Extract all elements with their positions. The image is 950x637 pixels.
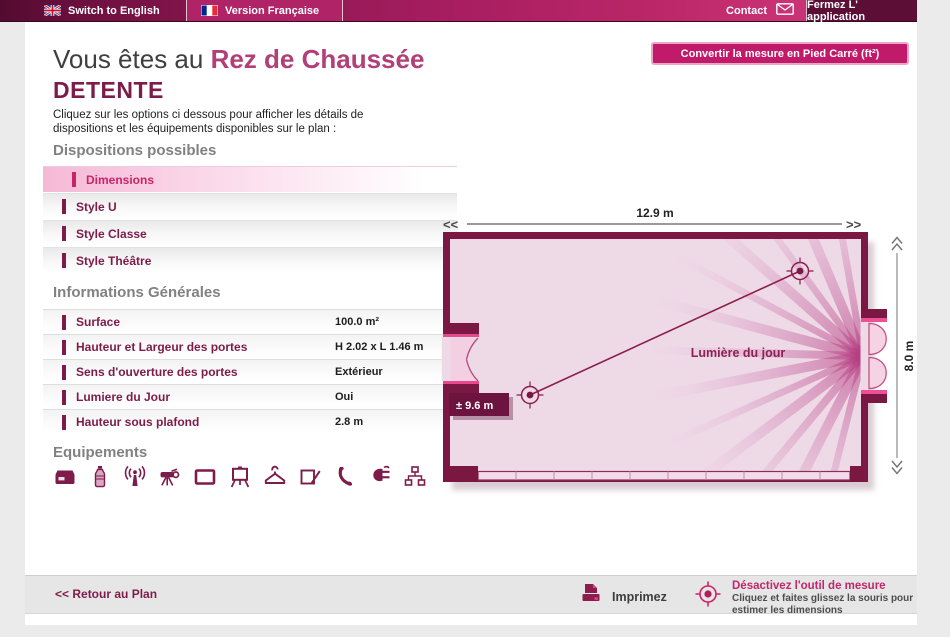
info-row-hauteur-plafond: Hauteur sous plafond 2.8 m (43, 409, 457, 434)
info-value: 100.0 m² (335, 316, 379, 328)
wireless-signal-icon[interactable] (123, 464, 147, 490)
info-row-lumiere: Lumiere du Jour Oui (43, 384, 457, 409)
row-accent-bar (62, 226, 66, 241)
measure-tool-title[interactable]: Désactivez l'outil de mesure (732, 580, 913, 592)
info-value: Oui (335, 391, 353, 403)
info-label: Hauteur sous plafond (76, 415, 199, 429)
switch-to-english-tab[interactable]: Switch to English (30, 0, 186, 21)
back-to-plan-link[interactable]: << Retour au Plan (55, 587, 157, 601)
disposition-label: Style Classe (76, 227, 147, 241)
measure-tool-hint: Cliquez et faites glissez la souris pour… (732, 593, 913, 616)
scroll-down-arrow[interactable] (892, 461, 902, 474)
right-door-leaf-top (869, 324, 886, 355)
intro-text: Cliquez sur les options ci dessous pour … (53, 108, 363, 136)
application-window: Switch to English Version Française Cont… (0, 0, 950, 637)
informations-section-title: Informations Générales (53, 284, 221, 301)
info-label: Hauteur et Largeur des portes (76, 340, 247, 354)
plan-height-dimension: 8.0 m (892, 238, 916, 474)
page-title-prefix: Vous êtes au (53, 44, 211, 74)
disposition-item-style-theatre[interactable]: Style Théâtre (43, 247, 457, 273)
scroll-left-arrow[interactable]: << (443, 217, 459, 232)
screen-icon[interactable] (193, 464, 217, 490)
intro-line-1: Cliquez sur les options ci dessous pour … (53, 108, 363, 122)
switch-to-english-label: Switch to English (68, 5, 160, 17)
version-francaise-label: Version Française (225, 5, 319, 17)
content-card: Vous êtes au Rez de Chaussée DETENTE Cli… (25, 22, 917, 625)
info-row-portes-dimensions: Hauteur et Largeur des portes H 2.02 x L… (43, 334, 457, 359)
uk-flag-icon (44, 5, 61, 16)
row-accent-bar (72, 172, 76, 187)
row-accent-bar (62, 390, 66, 405)
info-row-sens-ouverture: Sens d'ouverture des portes Extérieur (43, 359, 457, 384)
row-accent-bar (62, 315, 66, 330)
print-button[interactable]: Imprimez (578, 581, 667, 613)
topbar-spacer (343, 0, 714, 21)
info-row-surface: Surface 100.0 m² (43, 309, 457, 334)
power-plug-icon[interactable] (368, 464, 392, 490)
close-application-label: Fermez L' application (807, 0, 917, 23)
info-label: Surface (76, 315, 120, 329)
equipment-icons-row (53, 464, 427, 490)
crosshair-icon[interactable] (694, 580, 722, 613)
france-flag-icon (201, 5, 218, 16)
plan-height-label: 8.0 m (902, 341, 916, 372)
flipchart-icon[interactable] (228, 464, 252, 490)
coat-hanger-icon[interactable] (263, 464, 287, 490)
right-door-leaf-bottom (869, 358, 886, 389)
disposition-label: Style Théâtre (76, 254, 151, 268)
measure-tool-hint-line-1: Cliquez et faites glissez la souris pour (732, 593, 913, 605)
disposition-label: Dimensions (86, 173, 154, 187)
floor-plan[interactable]: 12.9 m << >> (440, 200, 920, 510)
notepad-pen-icon[interactable] (298, 464, 322, 490)
daylight-label: Lumière du jour (691, 346, 786, 360)
storage-box-icon[interactable] (53, 464, 77, 490)
row-accent-bar (62, 340, 66, 355)
envelope-icon (776, 3, 794, 18)
video-projector-icon[interactable] (158, 464, 182, 490)
telephone-icon[interactable] (333, 464, 357, 490)
equipements-section-title: Equipements (53, 444, 147, 461)
top-navigation-bar: Switch to English Version Française Cont… (0, 0, 917, 22)
plan-width-label: 12.9 m (636, 206, 673, 220)
disposition-item-style-u[interactable]: Style U (43, 193, 457, 219)
measure-tool-texts: Désactivez l'outil de mesure Cliquez et … (732, 580, 913, 616)
measure-value-label: ± 9.6 m (456, 400, 493, 412)
footer-bar: << Retour au Plan Imprimez Désactivez l'… (25, 575, 917, 614)
row-accent-bar (62, 415, 66, 430)
measure-tool-hint-line-2: estimer les dimensions (732, 605, 913, 617)
water-bottle-icon[interactable] (88, 464, 112, 490)
plan-width-dimension: 12.9 m (467, 206, 842, 224)
dispositions-section-title: Dispositions possibles (53, 142, 216, 159)
scroll-right-arrow[interactable]: >> (846, 217, 862, 232)
contact-label: Contact (726, 5, 767, 17)
contact-link[interactable]: Contact (714, 0, 806, 21)
scroll-up-arrow[interactable] (892, 238, 902, 251)
close-application-button[interactable]: Fermez L' application (806, 0, 917, 21)
info-value: H 2.02 x L 1.46 m (335, 341, 423, 353)
print-label: Imprimez (612, 590, 667, 604)
disposition-item-dimensions[interactable]: Dimensions (43, 166, 457, 192)
info-label: Sens d'ouverture des portes (76, 365, 238, 379)
row-accent-bar (62, 199, 66, 214)
floor-name: Rez de Chaussée (211, 44, 425, 74)
printer-icon (578, 581, 604, 613)
version-francaise-tab[interactable]: Version Française (187, 0, 342, 21)
disposition-item-style-classe[interactable]: Style Classe (43, 220, 457, 246)
network-icon[interactable] (403, 464, 427, 490)
info-value: 2.8 m (335, 416, 363, 428)
room-name: DETENTE (53, 77, 164, 104)
info-value: Extérieur (335, 366, 383, 378)
topbar-left-pad (0, 0, 30, 21)
measure-tool-toggle: Désactivez l'outil de mesure Cliquez et … (694, 580, 913, 616)
disposition-label: Style U (76, 200, 117, 214)
intro-line-2: dispositions et les équipements disponib… (53, 122, 363, 136)
measure-value-badge: ± 9.6 m (449, 393, 513, 420)
convert-to-sqft-button[interactable]: Convertir la mesure en Pied Carré (ft²) (651, 42, 909, 65)
info-label: Lumiere du Jour (76, 390, 170, 404)
row-accent-bar (62, 253, 66, 268)
page-title: Vous êtes au Rez de Chaussée (53, 44, 424, 75)
row-accent-bar (62, 365, 66, 380)
